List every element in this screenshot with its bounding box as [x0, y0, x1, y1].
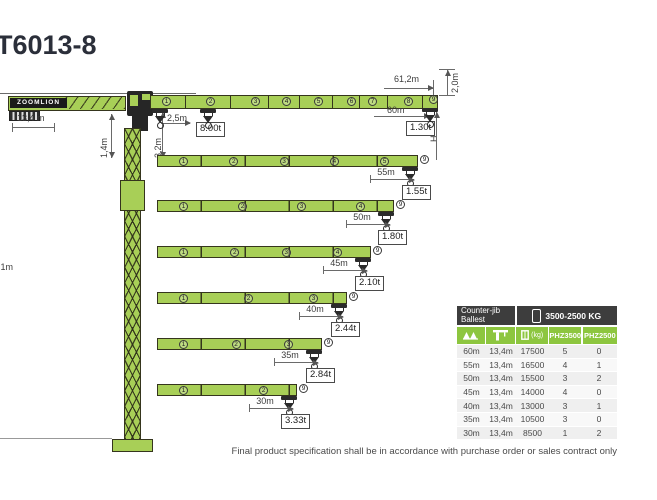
table-row: 55m13,4m1650041 [457, 359, 617, 372]
table-cell: 13,4m [486, 373, 516, 383]
radius-label: 55m [366, 167, 406, 177]
tip-load-box: 2.44t [331, 322, 360, 337]
arrow-right-icon [185, 120, 191, 126]
jib-section-number: 3 [280, 157, 289, 166]
jib-section-number: 4 [333, 248, 342, 257]
jib-section-number: 1 [179, 248, 188, 257]
footer-note: Final product specification shall be in … [227, 446, 617, 457]
total-length-line [384, 88, 433, 89]
table-cell: 5 [549, 346, 581, 356]
jib-section-divider [422, 96, 423, 108]
table-row: 50m13,4m1550032 [457, 372, 617, 385]
dim-tick [249, 404, 250, 412]
jib-section-divider [332, 96, 333, 108]
arrow-up-icon [109, 114, 115, 120]
jib-section-number: 1 [179, 386, 188, 395]
jib-section-divider [185, 96, 186, 108]
total-length-label: 61,2m [394, 74, 419, 84]
table-body: 60m13,4m175005055m13,4m165004150m13,4m15… [457, 345, 617, 439]
jib-section-number: 3 [309, 294, 318, 303]
jib-section-number: 8 [404, 97, 413, 106]
jib-bar-30m [157, 384, 297, 396]
table-column-header: (kg) PHZ3500 PHZ2500 [457, 327, 617, 344]
table-cell: 40m [457, 401, 486, 411]
table-row: 30m13,4m850012 [457, 427, 617, 440]
radius-dim-line [346, 224, 390, 225]
jib-section-number: 2 [232, 340, 241, 349]
jib-tip-marker: 9 [420, 155, 429, 164]
radius-label: 30m [245, 396, 285, 406]
jib-section-number: 5 [314, 97, 323, 106]
jib-section-number: 1 [162, 97, 171, 106]
trolley-hook-icon [422, 108, 438, 128]
table-cell: 14000 [516, 387, 549, 397]
dim-tick [274, 358, 275, 366]
dim-tick [370, 175, 371, 183]
jib-section-number: 3 [297, 202, 306, 211]
table-cell: 0 [581, 346, 617, 356]
page-title: T6013-8 [0, 30, 97, 61]
trolley-hook-icon [152, 109, 168, 129]
ballast-range-label: 3500-2500 KG [545, 311, 601, 321]
tip-load-box: 2.84t [306, 368, 335, 383]
table-cell: 1 [549, 428, 581, 438]
jib-section-number: 2 [229, 157, 238, 166]
jib-section-number: 3 [251, 97, 260, 106]
hook-height-label: H [429, 136, 439, 143]
dim-tick [433, 80, 434, 95]
jib-section-number: 4 [282, 97, 291, 106]
counter-jib-length-label: 13,4 m [17, 113, 45, 123]
table-cell: 2 [581, 373, 617, 383]
jib-section-number: 1 [179, 157, 188, 166]
table-cell: 1 [581, 401, 617, 411]
jib-section-number: 2 [244, 294, 253, 303]
dim-tick [299, 312, 300, 320]
table-cell: 17500 [516, 346, 549, 356]
table-row: 45m13,4m1400040 [457, 386, 617, 399]
table-row: 40m13,4m1300031 [457, 399, 617, 412]
max-radius-line [374, 116, 429, 117]
tip-load-box: 2.10t [355, 276, 384, 291]
tip-load-box: 1.55t [402, 185, 431, 200]
table-cell: 60m [457, 346, 486, 356]
jib-tip-marker: 9 [324, 338, 333, 347]
jib-section-number: 4 [330, 157, 339, 166]
jib-height-label: 2,0m [450, 73, 460, 93]
jib-section-number: 2 [238, 202, 247, 211]
radius-label: 40m [295, 304, 335, 314]
jib-section-number: 1 [179, 202, 188, 211]
table-cell: 2 [581, 428, 617, 438]
table-cell: 13,4m [486, 360, 516, 370]
table-cell: 13,4m [486, 387, 516, 397]
dim-tick [12, 123, 13, 132]
pendant-line [0, 93, 196, 94]
jib-tip-marker: 9 [299, 384, 308, 393]
crane-spec-sheet: T6013-8 ZOOMLION 123456789 13,4 m 1,4m 3… [0, 0, 657, 500]
tip-load-box: 1.80t [378, 230, 407, 245]
cab-window [130, 95, 138, 106]
radius-dim-line [274, 362, 318, 363]
table-cell: 0 [581, 414, 617, 424]
table-cell: 3 [549, 414, 581, 424]
table-cell: 55m [457, 360, 486, 370]
kg-label: (kg) [531, 332, 543, 339]
cab-roof [142, 94, 150, 100]
table-cell: 3 [549, 373, 581, 383]
hook-tip [205, 122, 212, 129]
arrow-right-icon [362, 268, 368, 274]
table-cell: 4 [549, 387, 581, 397]
radius-dim-line [370, 179, 414, 180]
table-cell: 16500 [516, 360, 549, 370]
tower-base [112, 439, 153, 452]
table-cell: 10500 [516, 414, 549, 424]
hook-tip [157, 122, 164, 129]
jib-section-number: 7 [368, 97, 377, 106]
hook-tip [427, 121, 434, 128]
table-cell: 30m [457, 428, 486, 438]
jib-section-number: 3 [284, 340, 293, 349]
ballast-table: Counter-jib Ballest 3500-2500 KG (kg) PH… [457, 306, 617, 440]
table-cell: 0 [581, 387, 617, 397]
radius-dim-line [323, 270, 367, 271]
radius-dim-line [249, 408, 293, 409]
arrow-up-icon [445, 70, 451, 76]
dim-tick [346, 220, 347, 228]
max-radius-label: 60m [387, 105, 405, 115]
tower-crane-icon [486, 327, 515, 344]
table-title-line2: Ballest [461, 315, 485, 324]
radius-label: 45m [319, 258, 359, 268]
counter-jib-dim-line [12, 127, 55, 128]
trolley-hook-icon [200, 109, 216, 129]
jib-section-number: 4 [356, 202, 365, 211]
table-row: 35m13,4m1050030 [457, 413, 617, 426]
clipped-height-label: ,1m [0, 262, 13, 272]
table-cell: 35m [457, 414, 486, 424]
table-title: Counter-jib Ballest [457, 306, 515, 325]
radius-dim-line [299, 316, 343, 317]
jib-section-number: 2 [259, 386, 268, 395]
ground-line [0, 438, 112, 439]
table-cell: 3 [549, 401, 581, 411]
jib-tip-marker: 9 [373, 246, 382, 255]
dim-tick [439, 95, 455, 96]
tower-mast [124, 128, 141, 440]
counter-jib-lattice [61, 97, 125, 109]
table-cell: 13000 [516, 401, 549, 411]
table-row: 60m13,4m1750050 [457, 345, 617, 358]
radius-label: 35m [270, 350, 310, 360]
jib-section-number: 2 [230, 248, 239, 257]
arrow-down-icon [109, 152, 115, 158]
tip-load-box: 3.33t [281, 414, 310, 429]
counter-jib: ZOOMLION [8, 96, 126, 111]
arrow-right-icon [313, 360, 319, 366]
arrow-right-icon [409, 177, 415, 183]
jib-tip-marker: 9 [429, 95, 438, 104]
table-cell: 1 [581, 360, 617, 370]
radius-label: 50m [342, 212, 382, 222]
jib-tip-marker: 9 [349, 292, 358, 301]
ballast-kg-icon: (kg) [516, 327, 548, 344]
dim-tick [54, 123, 55, 132]
table-cell: 13,4m [486, 428, 516, 438]
jib-section-divider [299, 96, 300, 108]
arrow-right-icon [288, 406, 294, 412]
jib-section-number: 5 [380, 157, 389, 166]
ballast-range: 3500-2500 KG [517, 306, 618, 325]
jib-section-number: 2 [206, 97, 215, 106]
table-cell: 13,4m [486, 414, 516, 424]
counterweight-icon [532, 309, 541, 323]
brand-logo: ZOOMLION [10, 98, 67, 108]
table-header: Counter-jib Ballest 3500-2500 KG [457, 306, 617, 325]
table-cell: 4 [549, 360, 581, 370]
arrow-right-icon [385, 222, 391, 228]
arrow-right-icon [338, 314, 344, 320]
table-cell: 13,4m [486, 346, 516, 356]
jib-sections-icon [457, 327, 485, 344]
jib-section-number: 3 [282, 248, 291, 257]
jib-section-divider [359, 96, 360, 108]
jib-section-number: 6 [347, 97, 356, 106]
jib-section-divider [268, 96, 269, 108]
phz3500-header: PHZ3500 [549, 327, 581, 344]
table-cell: 13,4m [486, 401, 516, 411]
jib-section-divider [230, 96, 231, 108]
table-cell: 15500 [516, 373, 549, 383]
jib-section-number: 1 [179, 294, 188, 303]
dim-tick [323, 266, 324, 274]
phz2500-header: PHZ2500 [583, 327, 617, 344]
jib-section-number: 1 [179, 340, 188, 349]
jib-tip-marker: 9 [396, 200, 405, 209]
mast-reinforced-section [120, 180, 145, 211]
table-cell: 50m [457, 373, 486, 383]
table-cell: 8500 [516, 428, 549, 438]
min-radius-label: 2,5m [167, 113, 187, 123]
table-cell: 45m [457, 387, 486, 397]
tail-height-label: 1,4m [99, 138, 109, 158]
